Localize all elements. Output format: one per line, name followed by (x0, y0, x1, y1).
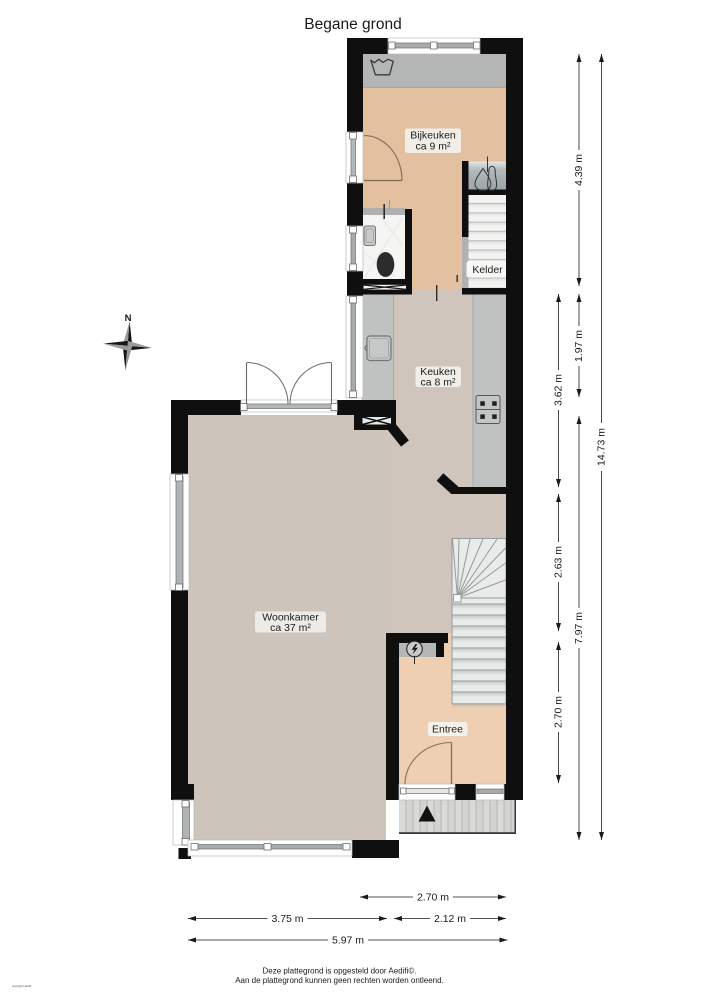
svg-text:Deze plattegrond is opgesteld: Deze plattegrond is opgesteld door Aedif… (263, 967, 417, 976)
svg-text:5.97 m: 5.97 m (332, 935, 364, 947)
svg-text:7.97 m: 7.97 m (573, 612, 585, 644)
svg-text:Kelder: Kelder (472, 264, 503, 276)
svg-text:Begane grond: Begane grond (304, 16, 401, 33)
svg-text:4.39 m: 4.39 m (573, 154, 585, 186)
svg-text:ca 8 m²: ca 8 m² (420, 377, 456, 389)
svg-text:2.70 m: 2.70 m (553, 696, 565, 728)
svg-text:3.62 m: 3.62 m (553, 374, 565, 406)
svg-text:copyright aedifi: copyright aedifi (12, 984, 31, 988)
svg-text:2.63 m: 2.63 m (553, 546, 565, 578)
svg-text:Aan de plattegrond kunnen geen: Aan de plattegrond kunnen geen rechten w… (235, 976, 444, 985)
svg-text:2.12 m: 2.12 m (434, 913, 466, 925)
svg-text:Entree: Entree (432, 724, 463, 736)
svg-text:14.73 m: 14.73 m (596, 428, 608, 466)
svg-text:1.97 m: 1.97 m (573, 330, 585, 362)
svg-text:3.75 m: 3.75 m (271, 913, 303, 925)
svg-text:ca 37 m²: ca 37 m² (270, 622, 311, 634)
svg-text:2.70 m: 2.70 m (417, 892, 449, 904)
svg-text:ca 9 m²: ca 9 m² (415, 141, 451, 153)
svg-text:N: N (125, 313, 132, 324)
